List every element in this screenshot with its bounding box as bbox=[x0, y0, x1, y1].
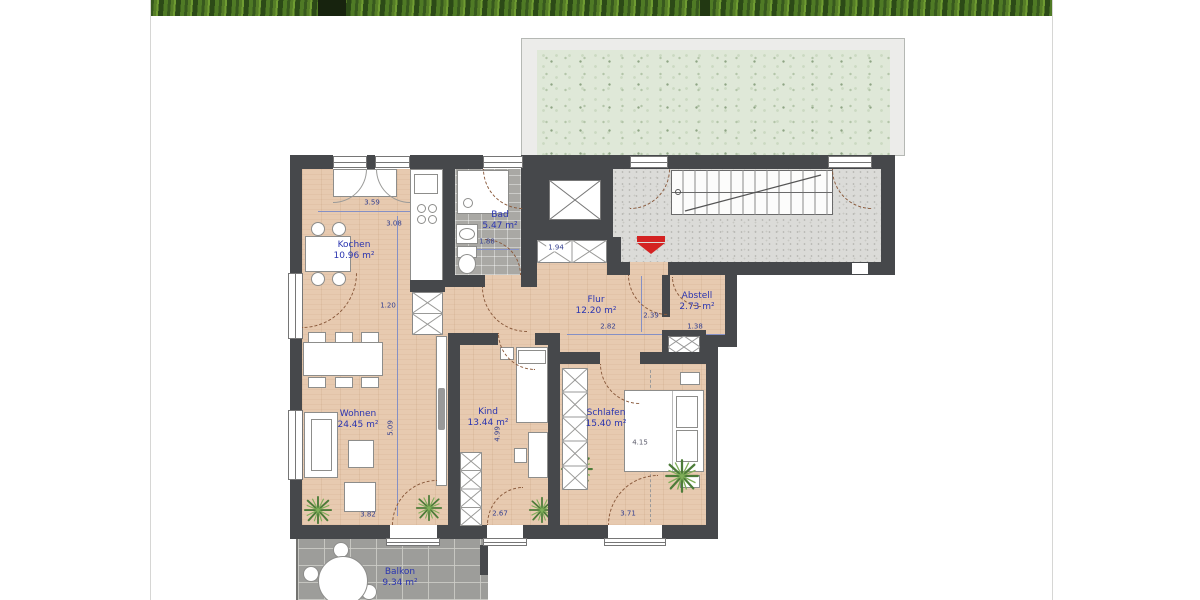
dimension-label: 2.82 bbox=[600, 324, 616, 331]
dining-table bbox=[303, 342, 383, 376]
tree-trunk bbox=[700, 0, 710, 16]
chair bbox=[311, 222, 325, 236]
photo-right-edge bbox=[1052, 0, 1053, 600]
wall-segment bbox=[706, 347, 718, 539]
dimension-label: 1.38 bbox=[687, 324, 703, 331]
dimension-label: 2.39 bbox=[643, 313, 659, 320]
room-label-bad: Bad5.47 m² bbox=[482, 210, 517, 232]
dimension-label: 3.59 bbox=[364, 200, 380, 207]
balcony-chair bbox=[303, 566, 319, 582]
wall-segment bbox=[367, 155, 375, 169]
window bbox=[375, 156, 410, 168]
washbasin-bowl bbox=[459, 228, 475, 240]
room-label-flur: Flur12.20 m² bbox=[575, 295, 616, 317]
shower-drain bbox=[463, 198, 473, 208]
room-label-kind: Kind13.44 m² bbox=[467, 407, 508, 429]
window bbox=[333, 156, 367, 168]
tree-trunk bbox=[318, 0, 346, 16]
chair bbox=[361, 377, 379, 388]
room-label-wohnen: Wohnen24.45 m² bbox=[337, 409, 378, 431]
desk-chair bbox=[514, 448, 527, 463]
dimension-label: 2.67 bbox=[492, 511, 508, 518]
wall-segment bbox=[521, 275, 537, 287]
window-sill bbox=[386, 538, 440, 546]
door-leaf bbox=[630, 156, 668, 168]
tree-foliage-banner bbox=[151, 0, 1052, 16]
dimension-label: 5.09 bbox=[388, 420, 395, 436]
wall-segment bbox=[521, 155, 537, 275]
wall-segment bbox=[640, 352, 706, 364]
stairs bbox=[671, 170, 833, 215]
wall-segment bbox=[443, 169, 455, 275]
exterior-mask bbox=[717, 347, 727, 525]
wall-segment bbox=[668, 262, 733, 275]
wall-segment bbox=[443, 275, 485, 287]
cooktop-burner bbox=[417, 204, 426, 213]
dim-line bbox=[567, 334, 667, 335]
dimension-label: 3.82 bbox=[360, 512, 376, 519]
room-label-abstell: Abstell2.73 m² bbox=[679, 291, 714, 313]
toilet-bowl bbox=[458, 254, 476, 274]
wall-segment bbox=[733, 262, 895, 275]
entrance-arrow-icon bbox=[637, 236, 665, 242]
chair bbox=[332, 222, 346, 236]
dimension-label: 4.15 bbox=[632, 440, 648, 447]
room-label-kochen: Kochen10.96 m² bbox=[333, 240, 374, 262]
wall-segment bbox=[290, 339, 302, 410]
elevator-icon bbox=[549, 180, 601, 220]
room-label-schlafen: Schlafen15.40 m² bbox=[585, 408, 626, 430]
wall-segment bbox=[290, 155, 302, 273]
door-leaf bbox=[828, 156, 872, 168]
window-sill bbox=[604, 538, 666, 546]
plant-icon bbox=[664, 458, 700, 494]
wall-segment bbox=[290, 525, 390, 539]
cooktop-burner bbox=[428, 215, 437, 224]
nightstand bbox=[680, 372, 700, 385]
kitchen-tall-cabinet bbox=[412, 292, 443, 335]
wall-segment bbox=[410, 280, 445, 292]
sofa-cushions bbox=[311, 419, 332, 471]
kind-wardrobe bbox=[460, 452, 482, 526]
ottoman bbox=[344, 482, 376, 512]
cooktop-burner bbox=[428, 204, 437, 213]
window bbox=[288, 273, 303, 339]
entrance-arrow-icon bbox=[637, 243, 665, 254]
wall-segment bbox=[662, 525, 718, 539]
dimension-label: 3.08 bbox=[386, 221, 402, 228]
cooktop-burner bbox=[417, 215, 426, 224]
wall-segment bbox=[881, 155, 895, 275]
coffee-table bbox=[348, 440, 374, 468]
door-opening bbox=[852, 263, 868, 274]
window bbox=[483, 156, 523, 168]
wall-segment bbox=[537, 232, 613, 240]
dimension-label: 4.99 bbox=[495, 426, 502, 442]
tv bbox=[438, 388, 445, 430]
wall-segment bbox=[523, 525, 608, 539]
schlafen-wardrobe bbox=[562, 368, 588, 490]
desk bbox=[528, 432, 548, 478]
dimension-label: 1.88 bbox=[479, 239, 495, 246]
green-roof-garden bbox=[537, 50, 890, 156]
dimension-label: 3.71 bbox=[620, 511, 636, 518]
wall-segment bbox=[613, 262, 630, 275]
room-label-balkon: Balkon9.34 m² bbox=[382, 567, 417, 589]
floor-plan-page: Kochen10.96 m² Bad5.47 m² Flur12.20 m² A… bbox=[0, 0, 1200, 600]
dimension-label: 1.20 bbox=[380, 303, 396, 310]
wall-segment bbox=[448, 333, 460, 525]
balcony-post bbox=[480, 545, 488, 575]
wall-segment bbox=[410, 155, 483, 169]
wall-segment bbox=[437, 525, 487, 539]
kitchen-sink bbox=[414, 174, 438, 194]
wall-segment bbox=[302, 155, 333, 169]
window bbox=[288, 410, 303, 480]
chair bbox=[308, 377, 326, 388]
wall-segment bbox=[706, 335, 737, 347]
dim-line bbox=[397, 216, 398, 516]
photo-left-edge bbox=[150, 0, 151, 600]
balcony-table bbox=[318, 556, 368, 600]
wall-segment bbox=[548, 352, 600, 364]
pillow bbox=[676, 396, 698, 428]
dimension-label: 1.94 bbox=[546, 245, 566, 252]
window-sill bbox=[483, 538, 527, 546]
chair bbox=[335, 377, 353, 388]
plant-icon bbox=[303, 495, 333, 525]
